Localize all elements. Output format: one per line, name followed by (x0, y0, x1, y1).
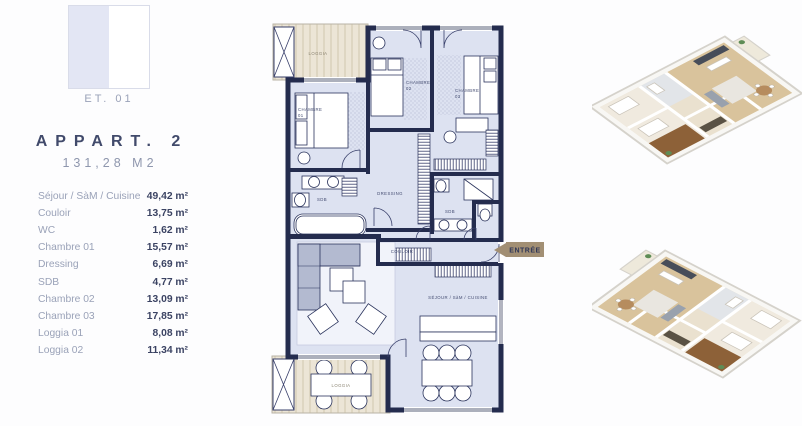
coffee-table (343, 281, 365, 303)
room-area: 15,57 m² (147, 242, 188, 253)
room-label: Couloir (38, 208, 71, 219)
table-row: SDB 4,77 m² (38, 273, 188, 290)
room-label: Séjour / SàM / Cuisine (38, 191, 140, 202)
bed-chambre-03 (464, 56, 498, 114)
table-row: Séjour / SàM / Cuisine 49,42 m² (38, 188, 188, 205)
carpet-texture (348, 92, 365, 150)
room-area: 6,69 m² (153, 259, 189, 270)
room-label: Chambre 02 (38, 294, 95, 305)
table-row: Dressing 6,69 m² (38, 256, 188, 273)
label-chambre-01: CHAMBRE (298, 107, 322, 112)
table-row: Loggia 01 8,08 m² (38, 325, 188, 342)
label-chambre-02-num: 02 (406, 86, 412, 91)
room-area: 1,62 m² (153, 225, 189, 236)
label-sdb2: SDB (445, 209, 455, 214)
room-label: Dressing (38, 259, 79, 270)
label-couloir: COULOIR (391, 249, 413, 254)
dressing-wardrobe (418, 134, 430, 224)
room-label: Chambre 03 (38, 311, 95, 322)
label-loggia-01: LOGGIA (309, 51, 328, 56)
render-3d-view-2 (592, 210, 802, 421)
table-row: Chambre 01 15,57 m² (38, 239, 188, 256)
kitchen-island (420, 316, 496, 341)
radiator (486, 130, 498, 156)
label-sdb1: SDB (317, 197, 327, 202)
apartment-total-area: 131,28 M2 (0, 156, 216, 170)
table-row: Loggia 02 11,34 m² (38, 342, 188, 359)
label-loggia-02: LOGGIA (332, 383, 351, 388)
room-label: Chambre 01 (38, 242, 95, 253)
carpet-texture (437, 55, 461, 115)
room-area: 4,77 m² (153, 277, 189, 288)
room-area: 13,09 m² (147, 294, 188, 305)
room-area-table: Séjour / SàM / Cuisine 49,42 m² Couloir … (38, 188, 188, 359)
info-panel: ET. 01 APPART. 2 131,28 M2 Séjour / SàM … (0, 0, 216, 421)
room-area: 49,42 m² (147, 191, 188, 202)
wardrobe (434, 159, 486, 170)
table-row: Chambre 02 13,09 m² (38, 291, 188, 308)
label-chambre-02: CHAMBRE (406, 80, 430, 85)
render-3d-view-1 (592, 0, 802, 210)
washer (342, 178, 357, 196)
room-label: Loggia 01 (38, 328, 83, 339)
label-dressing: DRESSING (377, 191, 403, 196)
room-label: Loggia 02 (38, 345, 83, 356)
floor-thumbnail-highlight (69, 6, 109, 88)
floor-label: ET. 01 (40, 93, 178, 105)
room-area: 13,75 m² (147, 208, 188, 219)
floor-plan-2d: LOGGIA CHAMBRE 01 CHAMBRE 02 CHAMBRE 03 … (218, 0, 548, 421)
table-row: Couloir 13,75 m² (38, 205, 188, 222)
label-chambre-03-num: 03 (455, 94, 461, 99)
dining-set (422, 345, 472, 401)
label-chambre-03: CHAMBRE (455, 88, 479, 93)
label-chambre-01-num: 01 (298, 113, 304, 118)
table-row: WC 1,62 m² (38, 222, 188, 239)
room-area: 11,34 m² (147, 345, 188, 356)
room-label: WC (38, 225, 55, 236)
room-area: 17,85 m² (147, 311, 188, 322)
apartment-title: APPART. 2 (0, 133, 216, 151)
room-label: SDB (38, 277, 59, 288)
entree-label: ENTRÉE (509, 246, 540, 255)
floor-position-thumbnail (68, 5, 150, 89)
label-sejour: SÉJOUR / SàM / CUISINE (428, 295, 488, 300)
table-row: Chambre 03 17,85 m² (38, 308, 188, 325)
room-area: 8,08 m² (153, 328, 189, 339)
